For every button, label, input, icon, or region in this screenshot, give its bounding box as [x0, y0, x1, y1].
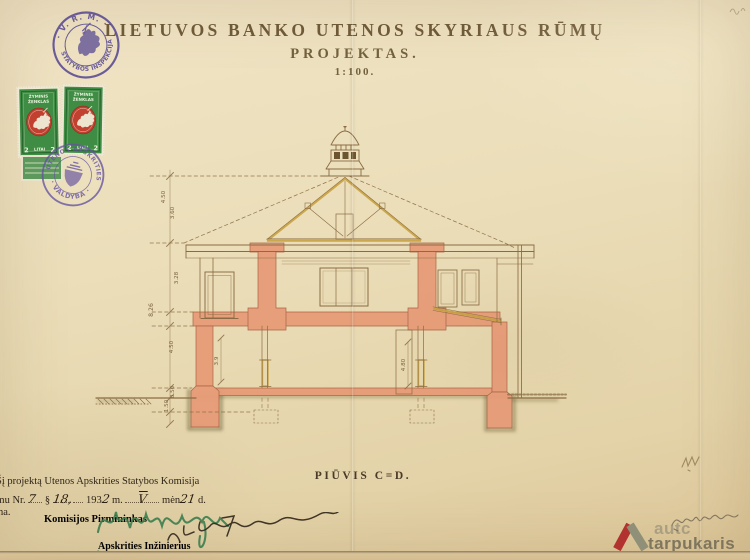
timber-members	[263, 179, 502, 387]
attic-hatch	[336, 214, 353, 239]
roof-truss-yellow	[267, 179, 421, 241]
pencil-signature	[668, 505, 748, 535]
sectioned-walls	[191, 243, 512, 428]
revenue-top-word2: ŽENKLAS	[28, 99, 49, 104]
sheet-subtitle: PROJEKTAS.	[90, 46, 620, 63]
svg-text:· V. R. M. ·: · V. R. M. ·	[49, 6, 111, 42]
dim-label: 8.26	[148, 303, 155, 317]
scanned-blueprint-sheet: 4.50 3.60 3.28 8.26 4.50 0.50 1.50 3.9 4…	[0, 0, 750, 560]
porch-post	[518, 245, 522, 398]
dim-label: 3.60	[170, 206, 176, 219]
dim-label: 0.50	[170, 385, 176, 398]
section-drawing: 4.50 3.60 3.28 8.26 4.50 0.50 1.50 3.9 4…	[88, 126, 576, 440]
dim-label: 3.28	[174, 271, 180, 284]
hand-paragraph: 18,	[52, 492, 73, 506]
hand-number: 7	[27, 492, 37, 506]
stamp-arc-top: · V. R. M. ·	[49, 6, 111, 42]
dim-label: 4.80	[401, 358, 407, 371]
approval-line-1: Šį projektą Utenos Apskrities Statybos K…	[0, 476, 236, 487]
form-text: §	[45, 495, 50, 506]
dim-label: 1.50	[164, 399, 170, 412]
revenue-value-left: 2	[24, 146, 29, 154]
hall-window	[320, 268, 368, 306]
fold-crease	[697, 0, 704, 560]
truss-ink	[267, 177, 421, 239]
left-cut-pier	[248, 243, 286, 330]
right-cut-pier	[408, 243, 446, 330]
left-foundation	[191, 386, 219, 427]
drawing-scale: 1:100.	[90, 66, 620, 78]
basement	[254, 326, 434, 423]
dim-label: 4.50	[161, 190, 167, 203]
left-facade	[200, 258, 238, 319]
coat-of-arms-icon	[61, 169, 83, 189]
dim-label: 4.50	[169, 340, 175, 353]
revenue-top-word2: ŽENKLAS	[73, 97, 94, 102]
dim-label: 3.9	[214, 356, 220, 365]
cupola	[321, 126, 369, 176]
left-basement-wall	[196, 326, 213, 386]
engineer-signature	[160, 512, 340, 554]
cornice	[186, 245, 534, 264]
porch-column	[492, 322, 507, 392]
section-caption: PIŪVIS C=D.	[308, 470, 418, 482]
corner-pencil-note	[728, 2, 748, 18]
sheet-title: LIETUVOS BANKO UTENOS SKYRIAUS RŪMŲ	[90, 20, 620, 41]
approval-line-3: na.	[0, 507, 38, 518]
watermark-word-2: tarpukaris	[648, 534, 735, 554]
pencil-mark	[678, 453, 706, 473]
form-text: rimu Nr.	[0, 495, 26, 506]
basement-floor-slab	[213, 388, 492, 396]
watermark-logo	[612, 521, 650, 551]
vytis-emblem-icon	[74, 27, 103, 58]
